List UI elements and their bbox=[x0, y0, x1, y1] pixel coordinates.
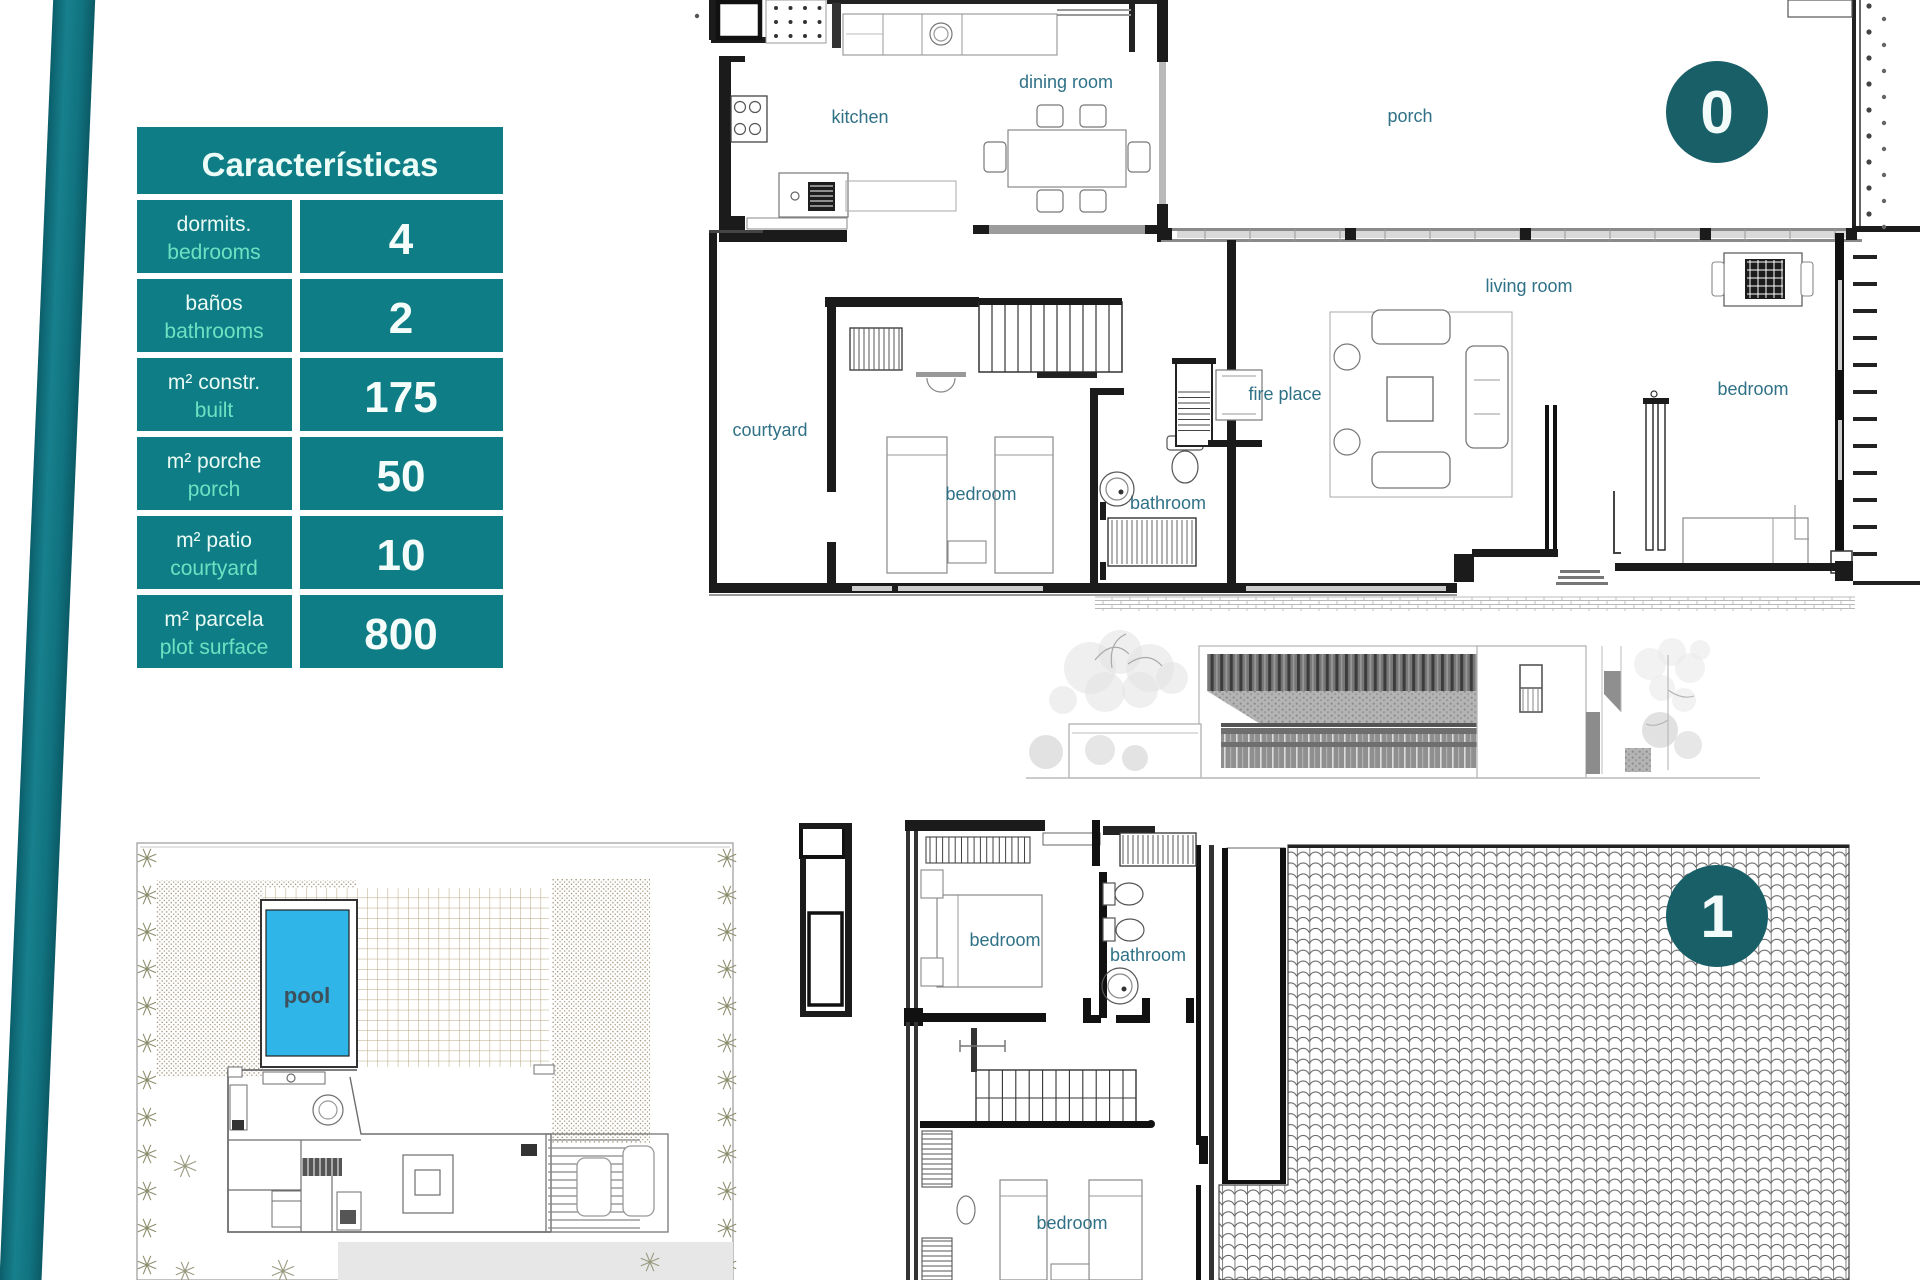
svg-text:bathroom: bathroom bbox=[1110, 945, 1186, 965]
svg-text:plot surface: plot surface bbox=[160, 636, 269, 659]
svg-text:bathrooms: bathrooms bbox=[164, 320, 263, 343]
svg-text:0: 0 bbox=[1700, 79, 1733, 146]
svg-text:dormits.: dormits. bbox=[177, 213, 252, 236]
svg-text:4: 4 bbox=[389, 215, 414, 264]
svg-text:bathroom: bathroom bbox=[1130, 493, 1206, 513]
svg-text:Características: Características bbox=[202, 146, 439, 183]
svg-text:1: 1 bbox=[1700, 883, 1733, 950]
svg-text:bedroom: bedroom bbox=[969, 930, 1040, 950]
svg-text:800: 800 bbox=[364, 610, 437, 659]
svg-text:m² porche: m² porche bbox=[167, 450, 262, 473]
svg-text:bedroom: bedroom bbox=[945, 484, 1016, 504]
svg-text:dining room: dining room bbox=[1019, 72, 1113, 92]
svg-text:built: built bbox=[195, 399, 234, 422]
svg-text:m² patio: m² patio bbox=[176, 529, 252, 552]
svg-text:50: 50 bbox=[377, 452, 426, 501]
svg-text:porch: porch bbox=[188, 478, 241, 501]
svg-text:fire place: fire place bbox=[1248, 384, 1321, 404]
svg-text:courtyard: courtyard bbox=[732, 420, 807, 440]
svg-text:m² parcela: m² parcela bbox=[164, 608, 264, 631]
svg-text:bedroom: bedroom bbox=[1717, 379, 1788, 399]
svg-text:bedroom: bedroom bbox=[1036, 1213, 1107, 1233]
svg-text:2: 2 bbox=[389, 294, 413, 343]
svg-text:10: 10 bbox=[377, 531, 426, 580]
svg-text:175: 175 bbox=[364, 373, 437, 422]
svg-text:porch: porch bbox=[1387, 106, 1432, 126]
svg-text:m² constr.: m² constr. bbox=[168, 371, 260, 394]
svg-text:pool: pool bbox=[284, 983, 330, 1008]
svg-text:kitchen: kitchen bbox=[831, 107, 888, 127]
svg-text:bedrooms: bedrooms bbox=[167, 241, 260, 264]
svg-text:baños: baños bbox=[185, 292, 242, 315]
svg-text:living room: living room bbox=[1485, 276, 1572, 296]
svg-text:courtyard: courtyard bbox=[170, 557, 258, 580]
